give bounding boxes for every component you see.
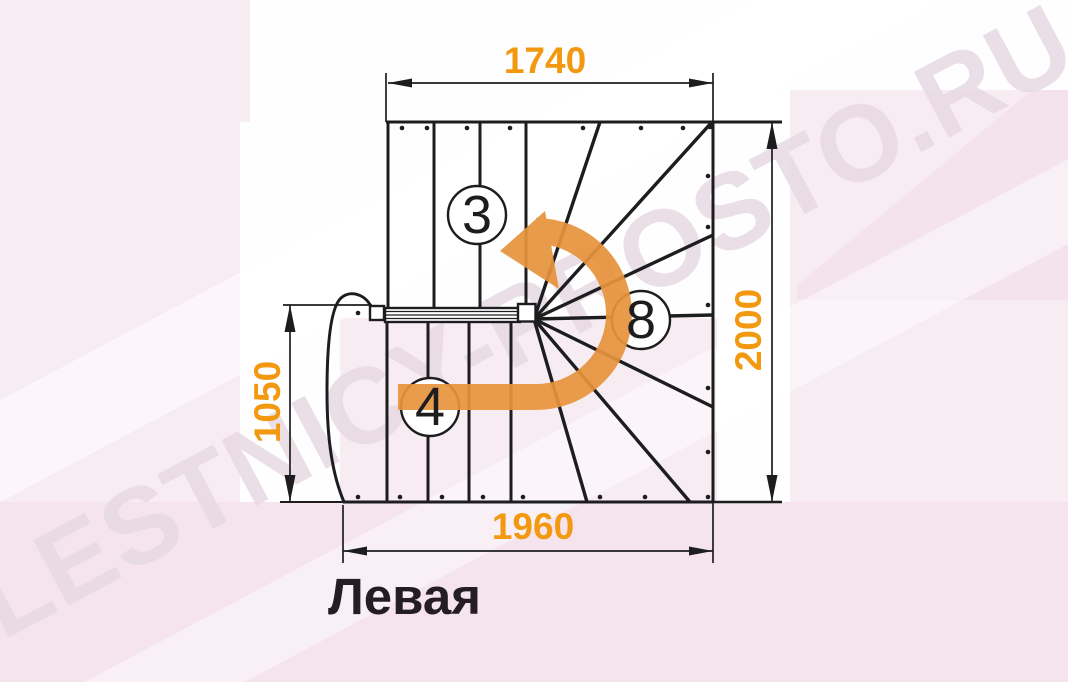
winder-step-count: 8 xyxy=(611,290,671,350)
turn-direction-arrow xyxy=(398,211,619,397)
dimension-left-label: 1050 xyxy=(248,342,288,462)
lower-flight-step-count: 4 xyxy=(400,377,460,437)
entry-handrail-curve xyxy=(327,294,372,502)
upper-flight-step-count: 3 xyxy=(447,185,507,245)
dimension-top-label: 1740 xyxy=(485,41,605,81)
landing-rail xyxy=(370,304,536,322)
center-post xyxy=(518,304,536,322)
stair-plan-canvas: LESTNICY-PROSTO.RU xyxy=(0,0,1068,682)
dimension-bottom-label: 1960 xyxy=(473,507,593,547)
plan-title: Левая xyxy=(328,572,578,620)
left-post xyxy=(370,306,384,320)
dimension-right-label: 2000 xyxy=(729,270,769,390)
